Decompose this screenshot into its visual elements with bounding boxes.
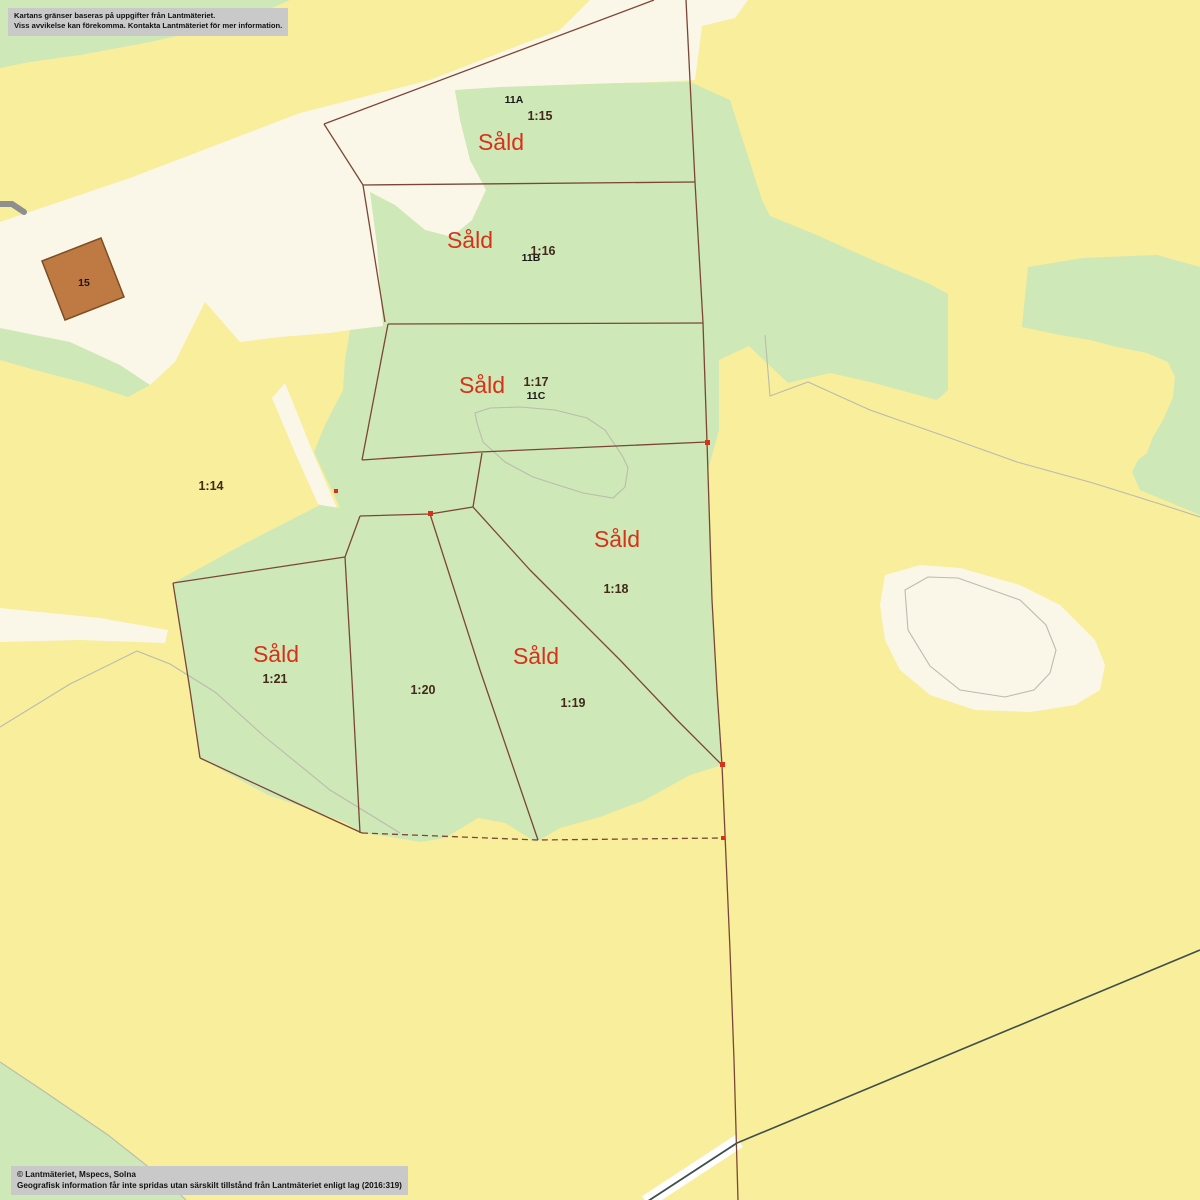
sold-label-1-18: Såld [594, 526, 640, 552]
sold-label-1-16: Såld [447, 227, 493, 253]
sold-label-1-17: Såld [459, 372, 505, 398]
sold-label-1-19: Såld [513, 643, 559, 669]
map-disclaimer: Kartans gränser baseras på uppgifter frå… [8, 8, 288, 36]
building-11c-label: 11C [527, 390, 546, 402]
disclaimer-line-1: Kartans gränser baseras på uppgifter frå… [14, 11, 282, 21]
building-11a-label: 11A [505, 94, 524, 106]
cadastral-map: 15 11A 1:15 Såld Såld 11B 1:16 Såld 1:17… [0, 0, 1200, 1200]
attribution-line-1: © Lantmäteriet, Mspecs, Solna [17, 1169, 402, 1180]
survey-mark [334, 489, 338, 493]
parcel-1-20-label[interactable]: 1:20 [410, 683, 435, 697]
parcel-1-18-label[interactable]: 1:18 [603, 582, 628, 596]
parcel-1-15-label[interactable]: 1:15 [527, 109, 552, 123]
sold-label-1-21: Såld [253, 641, 299, 667]
sold-label-1-15: Såld [478, 129, 524, 155]
survey-mark [720, 762, 725, 767]
map-canvas: 15 11A 1:15 Såld Såld 11B 1:16 Såld 1:17… [0, 0, 1200, 1200]
parcel-1-17-label[interactable]: 1:17 [523, 375, 548, 389]
survey-mark [428, 511, 433, 516]
map-attribution: © Lantmäteriet, Mspecs, Solna Geografisk… [11, 1166, 408, 1195]
attribution-line-2: Geografisk information får inte spridas … [17, 1180, 402, 1191]
parcel-1-16-label[interactable]: 1:16 [530, 244, 555, 258]
building-15-label: 15 [78, 277, 90, 289]
parcel-1-14-label[interactable]: 1:14 [198, 479, 223, 493]
parcel-1-19-label[interactable]: 1:19 [560, 696, 585, 710]
survey-mark [721, 836, 725, 840]
disclaimer-line-2: Viss avvikelse kan förekomma. Kontakta L… [14, 21, 282, 31]
survey-mark [705, 440, 710, 445]
parcel-1-21-label[interactable]: 1:21 [262, 672, 287, 686]
